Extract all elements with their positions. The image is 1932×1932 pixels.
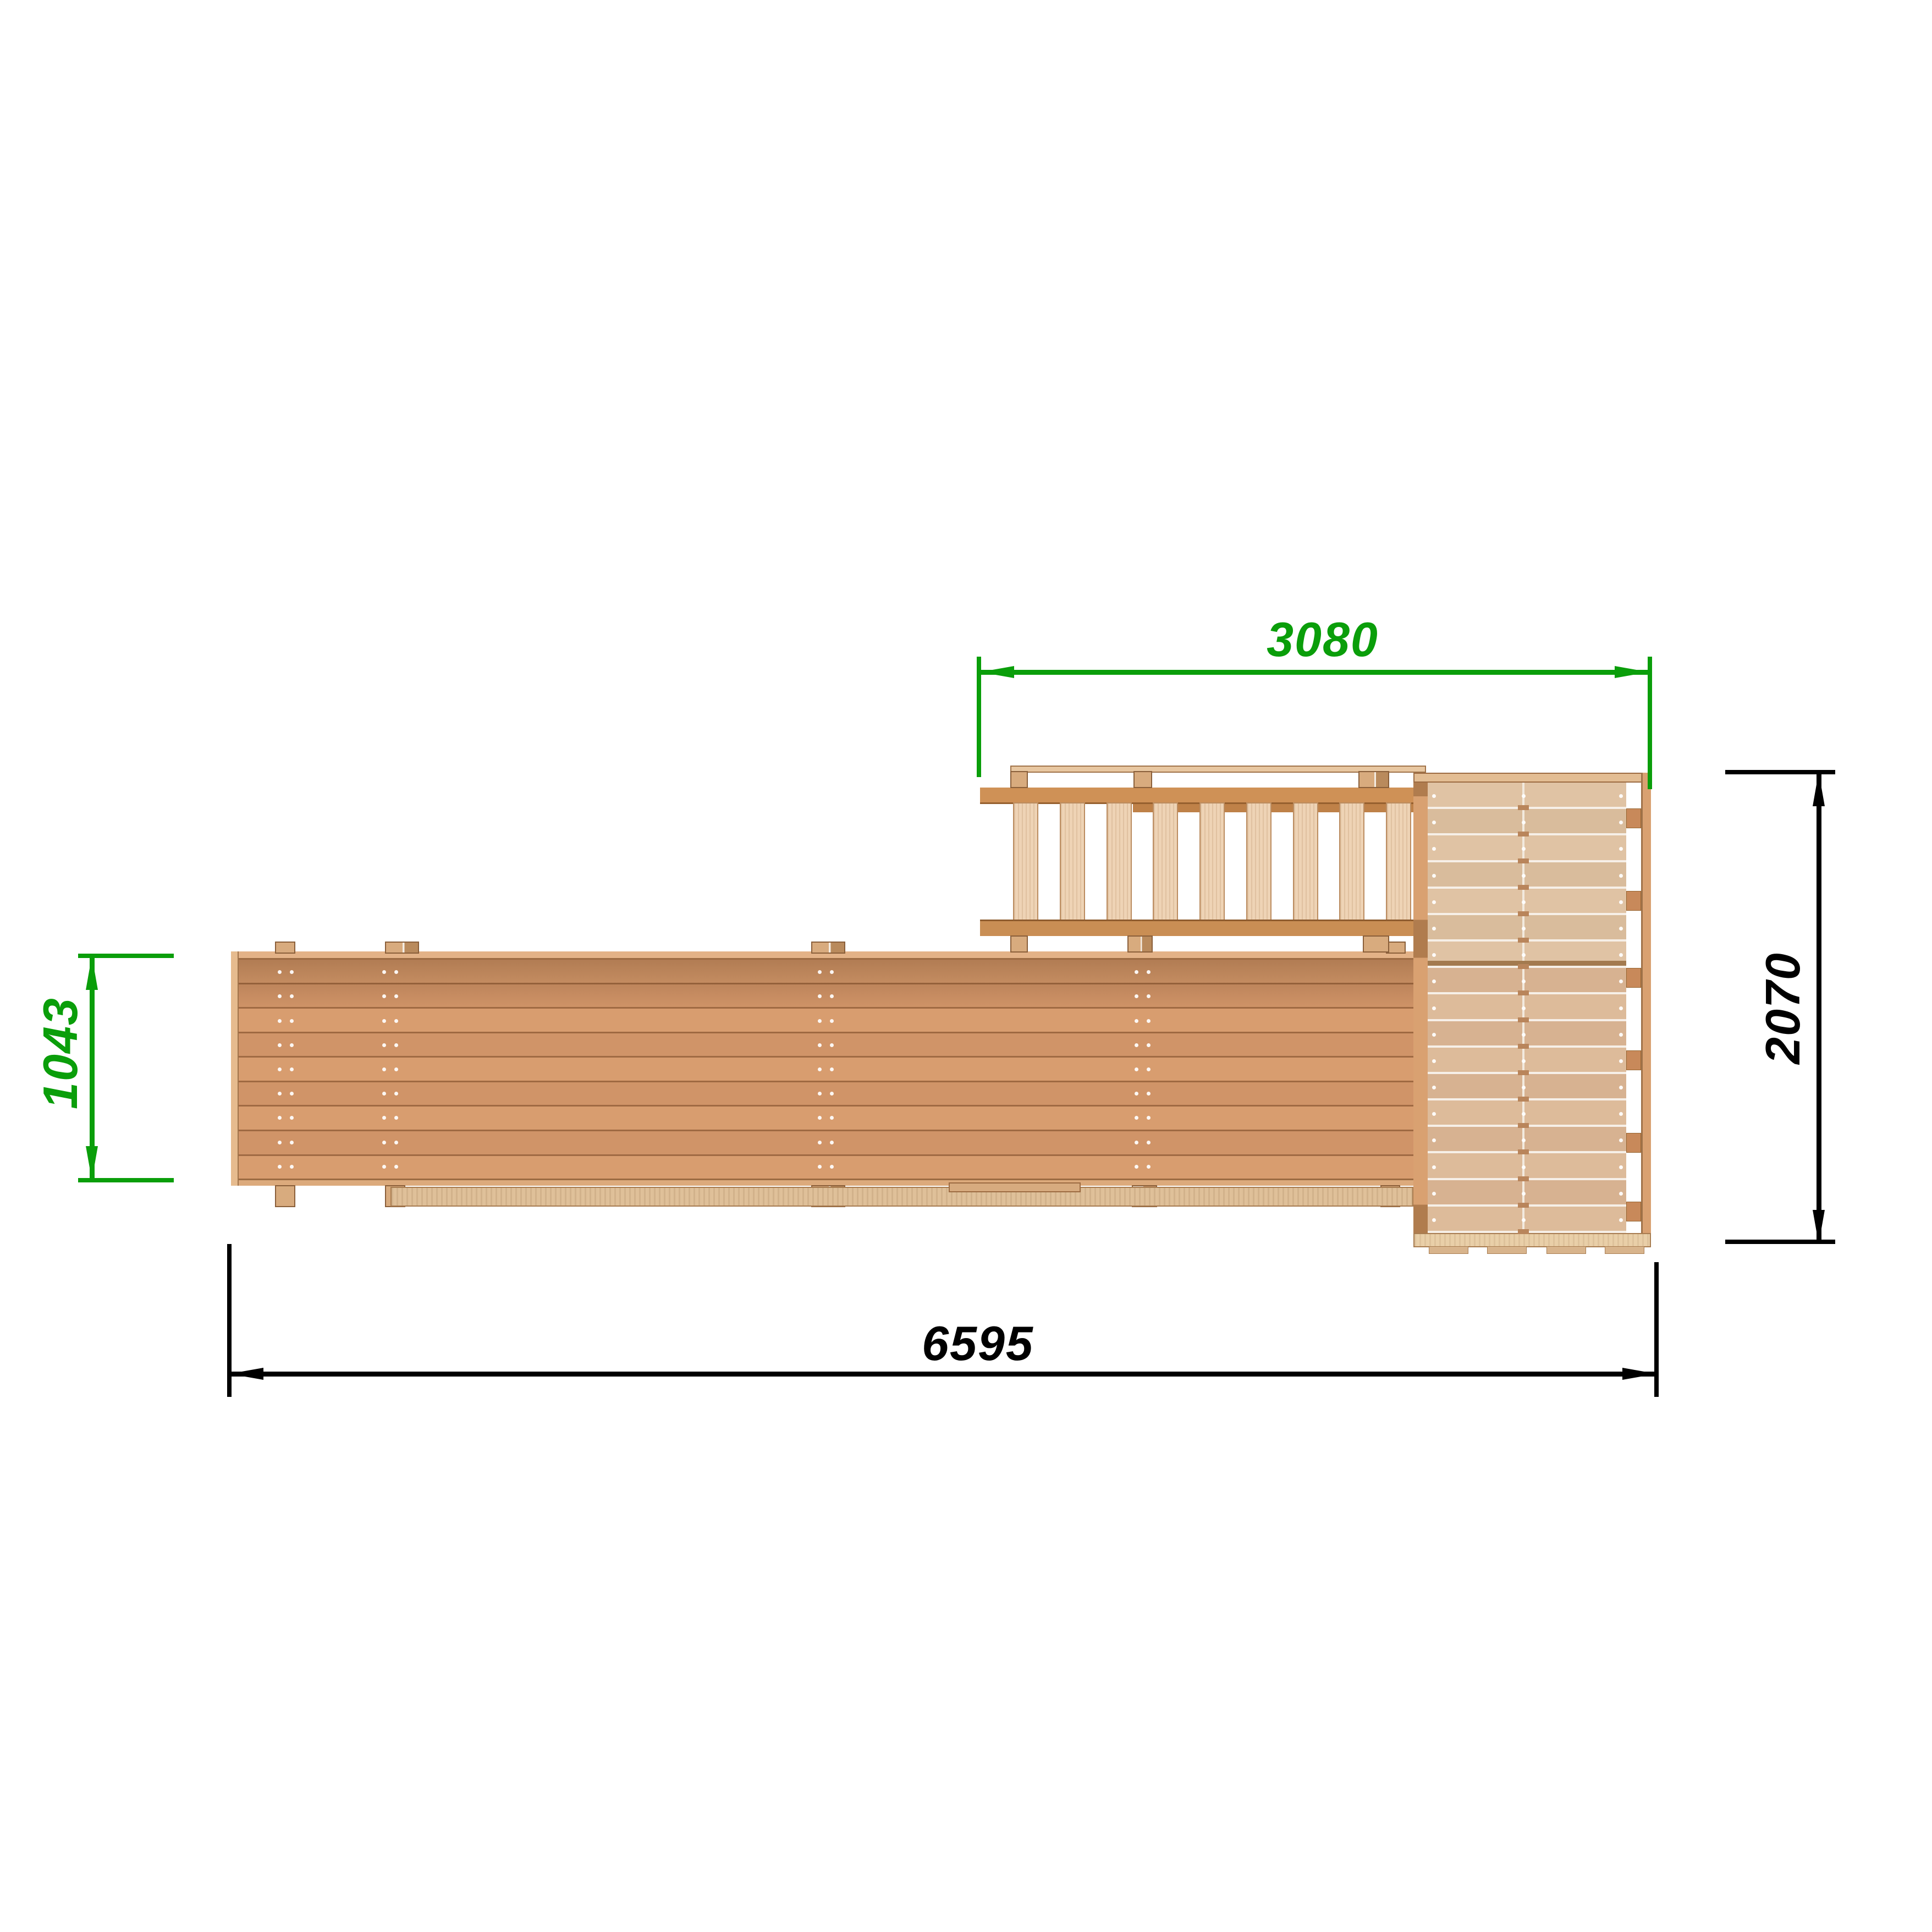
ladder-post xyxy=(1133,771,1152,788)
screw-dot xyxy=(1432,900,1436,904)
screw-dot xyxy=(290,1043,294,1047)
screw-dot xyxy=(394,1019,398,1023)
screw-dot xyxy=(1522,874,1526,878)
platform-board-row xyxy=(1428,1207,1626,1233)
screw-dot xyxy=(830,1067,834,1071)
screw-dot xyxy=(1619,927,1623,931)
arrowhead-right xyxy=(1622,1368,1656,1380)
dimension-line xyxy=(229,1372,1656,1377)
screw-dot xyxy=(278,1141,282,1144)
screw-dot xyxy=(830,1165,834,1169)
platform-board-row xyxy=(1428,915,1626,942)
screw-dot xyxy=(290,1165,294,1169)
extension-line xyxy=(78,1178,174,1182)
screw-dot xyxy=(290,1019,294,1023)
screw-dot xyxy=(382,1165,386,1169)
platform-board-row xyxy=(1428,1180,1626,1207)
dimension-line xyxy=(1817,772,1821,1244)
platform-board-row xyxy=(1428,1127,1626,1153)
screw-dot xyxy=(394,1067,398,1071)
ladder-post xyxy=(1010,771,1028,788)
screw-dot xyxy=(278,1043,282,1047)
arrowhead-up xyxy=(86,956,98,990)
screw-dot xyxy=(1432,1192,1436,1196)
frame-tab xyxy=(1626,891,1641,911)
ladder-rung xyxy=(1107,802,1132,922)
ladder-top-rail xyxy=(980,788,1426,804)
screw-dot xyxy=(1522,1165,1526,1169)
arrowhead-left xyxy=(229,1368,263,1380)
screw-dot xyxy=(394,1141,398,1144)
deck-plank xyxy=(239,1081,1413,1105)
ladder-post xyxy=(1127,935,1153,953)
screw-dot xyxy=(1432,1033,1436,1037)
platform-board-row xyxy=(1428,994,1626,1021)
platform-board-row xyxy=(1428,783,1626,809)
screw-dot xyxy=(1619,1033,1623,1037)
screw-dot xyxy=(1522,1218,1526,1222)
platform-board-row xyxy=(1428,1074,1626,1100)
screw-dot xyxy=(394,1043,398,1047)
screw-dot xyxy=(818,1067,822,1071)
screw-dot xyxy=(1522,927,1526,931)
platform-board-row xyxy=(1428,1048,1626,1074)
platform-foot xyxy=(1605,1246,1644,1254)
screw-dot xyxy=(1522,1006,1526,1010)
screw-dot xyxy=(1432,1006,1436,1010)
screw-dot xyxy=(830,1019,834,1023)
deck-planks xyxy=(239,960,1413,1179)
ladder-rung xyxy=(1199,802,1225,922)
screw-dot xyxy=(1522,900,1526,904)
dimension-line xyxy=(980,670,1649,675)
frame-tab xyxy=(1626,968,1641,988)
screw-dot xyxy=(1147,1165,1151,1169)
screw-dot xyxy=(1619,1192,1623,1196)
screw-dot xyxy=(1522,1033,1526,1037)
frame-tab xyxy=(1626,1050,1641,1070)
extension-line xyxy=(227,1244,232,1397)
screw-dot xyxy=(1522,1192,1526,1196)
deck-plank xyxy=(239,1056,1413,1081)
screw-dot xyxy=(1135,1019,1138,1023)
railing-post xyxy=(275,942,295,954)
arrowhead-down xyxy=(86,1146,98,1180)
screw-dot xyxy=(818,1141,822,1144)
dimension-label-top: 3080 xyxy=(1185,607,1460,673)
bottom-rail-board xyxy=(390,1187,1413,1207)
screw-dot xyxy=(830,1043,834,1047)
ladder-rung xyxy=(1246,802,1272,922)
screw-dot xyxy=(1432,1059,1436,1063)
platform-board-row xyxy=(1428,809,1626,835)
screw-dot xyxy=(1619,874,1623,878)
platform-foot xyxy=(1546,1246,1586,1254)
extension-line xyxy=(977,657,981,777)
extension-line xyxy=(1725,770,1835,774)
ladder-rung xyxy=(1060,802,1085,922)
ladder-rung xyxy=(1013,802,1038,922)
arrowhead-right xyxy=(1615,666,1649,678)
screw-dot xyxy=(1147,1043,1151,1047)
ladder-rungs xyxy=(1013,802,1411,922)
ladder-rung xyxy=(1153,802,1178,922)
screw-dot xyxy=(394,1165,398,1169)
arrowhead-up xyxy=(1813,772,1825,806)
screw-dot xyxy=(278,1067,282,1071)
screw-dot xyxy=(1619,1218,1623,1222)
screw-dot xyxy=(1432,1165,1436,1169)
screw-dot xyxy=(1135,1043,1138,1047)
screw-dot xyxy=(1432,1218,1436,1222)
screw-dot xyxy=(1432,874,1436,878)
screw-dot xyxy=(290,1067,294,1071)
ladder-rung xyxy=(1386,802,1411,922)
screw-dot xyxy=(1432,927,1436,931)
dimension-label-right: 2070 xyxy=(1750,871,1816,1146)
platform-foot xyxy=(1487,1246,1527,1254)
screw-dot xyxy=(382,1067,386,1071)
platform-board-row xyxy=(1428,1100,1626,1127)
screw-dot xyxy=(1619,1165,1623,1169)
screw-dot xyxy=(1135,1165,1138,1169)
deck-plank xyxy=(239,1032,1413,1056)
platform-bottom-frame xyxy=(1413,1233,1651,1247)
deck-plank xyxy=(239,1105,1413,1130)
screw-dot xyxy=(1619,1059,1623,1063)
platform-top-board xyxy=(1413,773,1651,783)
screw-dot xyxy=(1522,1086,1526,1089)
screw-dot xyxy=(1147,1019,1151,1023)
extension-line xyxy=(78,954,174,958)
extension-line xyxy=(1654,1262,1659,1397)
mid-short-board xyxy=(949,1182,1081,1192)
ladder-post xyxy=(1363,935,1389,953)
screw-dot xyxy=(1147,1141,1151,1144)
screw-dot xyxy=(1619,900,1623,904)
platform-board-row xyxy=(1428,889,1626,915)
screw-dot xyxy=(818,1019,822,1023)
platform-right-frame xyxy=(1641,773,1651,1247)
screw-dot xyxy=(818,1165,822,1169)
extension-line xyxy=(1648,657,1652,789)
screw-dot xyxy=(1619,1086,1623,1089)
screw-dot xyxy=(830,1141,834,1144)
dimension-label-left: 1043 xyxy=(27,993,93,1114)
technical-drawing: 3080 2070 1043 6595 xyxy=(0,0,1932,1932)
ladder-rung xyxy=(1293,802,1318,922)
platform-foot xyxy=(1429,1246,1468,1254)
screw-dot xyxy=(1619,1006,1623,1010)
frame-tab xyxy=(1626,1133,1641,1153)
screw-dot xyxy=(382,1043,386,1047)
dimension-label-bottom: 6595 xyxy=(840,1311,1115,1377)
screw-dot xyxy=(278,1165,282,1169)
screw-dot xyxy=(1522,1059,1526,1063)
deck-plank xyxy=(239,1130,1413,1154)
ladder-post xyxy=(1358,771,1389,788)
platform-board-row xyxy=(1428,1021,1626,1048)
screw-dot xyxy=(1147,1067,1151,1071)
frame-tab xyxy=(1626,1202,1641,1221)
deck-plank xyxy=(239,1007,1413,1032)
screw-dot xyxy=(290,1141,294,1144)
extension-line xyxy=(1725,1240,1835,1244)
platform-rows xyxy=(1428,783,1626,1233)
screw-dot xyxy=(382,1019,386,1023)
arrowhead-down xyxy=(1813,1210,1825,1244)
railing-post xyxy=(275,1185,295,1207)
deck-plank xyxy=(239,983,1413,1008)
platform-board-row xyxy=(1428,1153,1626,1180)
ladder-rung xyxy=(1339,802,1364,922)
ladder-post xyxy=(1010,935,1028,953)
platform-board-row xyxy=(1428,835,1626,862)
deck-plank xyxy=(239,1154,1413,1179)
platform-board-row xyxy=(1428,968,1626,994)
ladder-bottom-rail xyxy=(980,920,1426,936)
railing-post xyxy=(811,942,845,954)
deck-left-edge-board xyxy=(231,951,239,1186)
arrowhead-left xyxy=(980,666,1014,678)
platform-board-row xyxy=(1428,862,1626,889)
frame-tab xyxy=(1626,808,1641,828)
railing-post xyxy=(385,942,419,954)
screw-dot xyxy=(278,1019,282,1023)
screw-dot xyxy=(1135,1141,1138,1144)
screw-dot xyxy=(1135,1067,1138,1071)
platform-left-frame xyxy=(1413,773,1428,1247)
deck-plank xyxy=(239,960,1413,983)
screw-dot xyxy=(818,1043,822,1047)
screw-dot xyxy=(1432,1086,1436,1089)
screw-dot xyxy=(382,1141,386,1144)
